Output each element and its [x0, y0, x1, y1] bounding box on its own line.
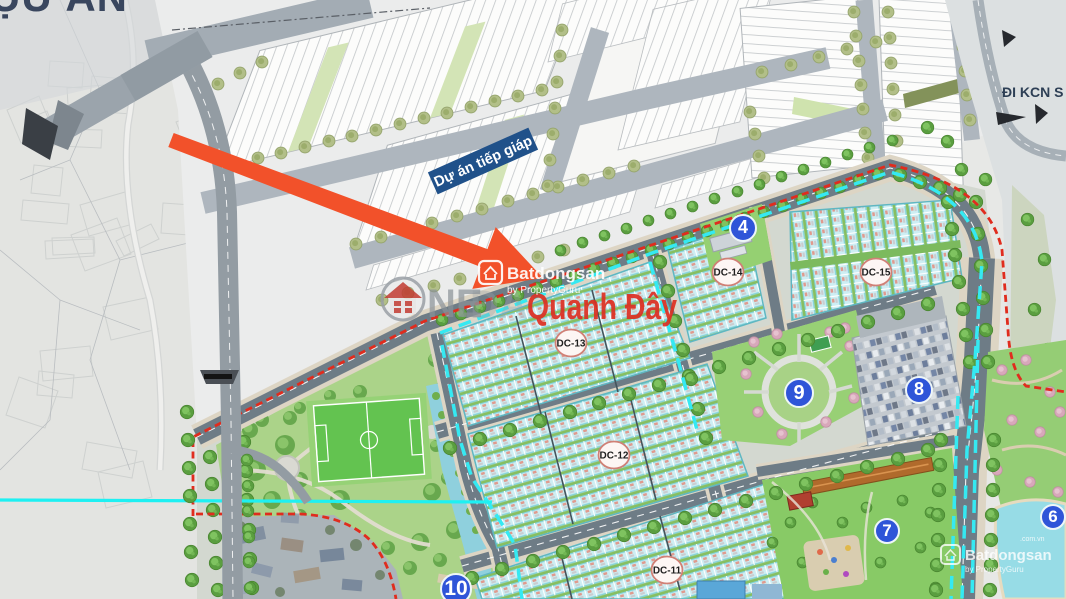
svg-text:.com.vn: .com.vn	[1020, 536, 1045, 543]
svg-text:8: 8	[914, 379, 924, 399]
svg-text:by PropertyGuru: by PropertyGuru	[507, 285, 580, 296]
svg-text:by PropertyGuru: by PropertyGuru	[965, 565, 1024, 574]
svg-text:DC-11: DC-11	[653, 566, 682, 577]
svg-text:6: 6	[1048, 507, 1057, 526]
svg-text:Batdongsan: Batdongsan	[507, 264, 605, 283]
svg-text:DC-13: DC-13	[557, 339, 586, 350]
svg-text:ỤU ÁN: ỤU ÁN	[0, 0, 128, 20]
svg-text:Batdongsan: Batdongsan	[965, 547, 1052, 564]
svg-text:ĐI KCN S: ĐI KCN S	[1002, 84, 1063, 100]
svg-text:10: 10	[444, 577, 467, 599]
svg-text:DC-14: DC-14	[714, 268, 743, 279]
svg-text:9: 9	[793, 382, 804, 404]
svg-text:DC-15: DC-15	[862, 268, 891, 279]
svg-text:NE: NE	[427, 282, 483, 326]
svg-text:4: 4	[738, 217, 748, 237]
svg-text:DC-12: DC-12	[600, 451, 629, 462]
svg-text:7: 7	[882, 521, 891, 540]
